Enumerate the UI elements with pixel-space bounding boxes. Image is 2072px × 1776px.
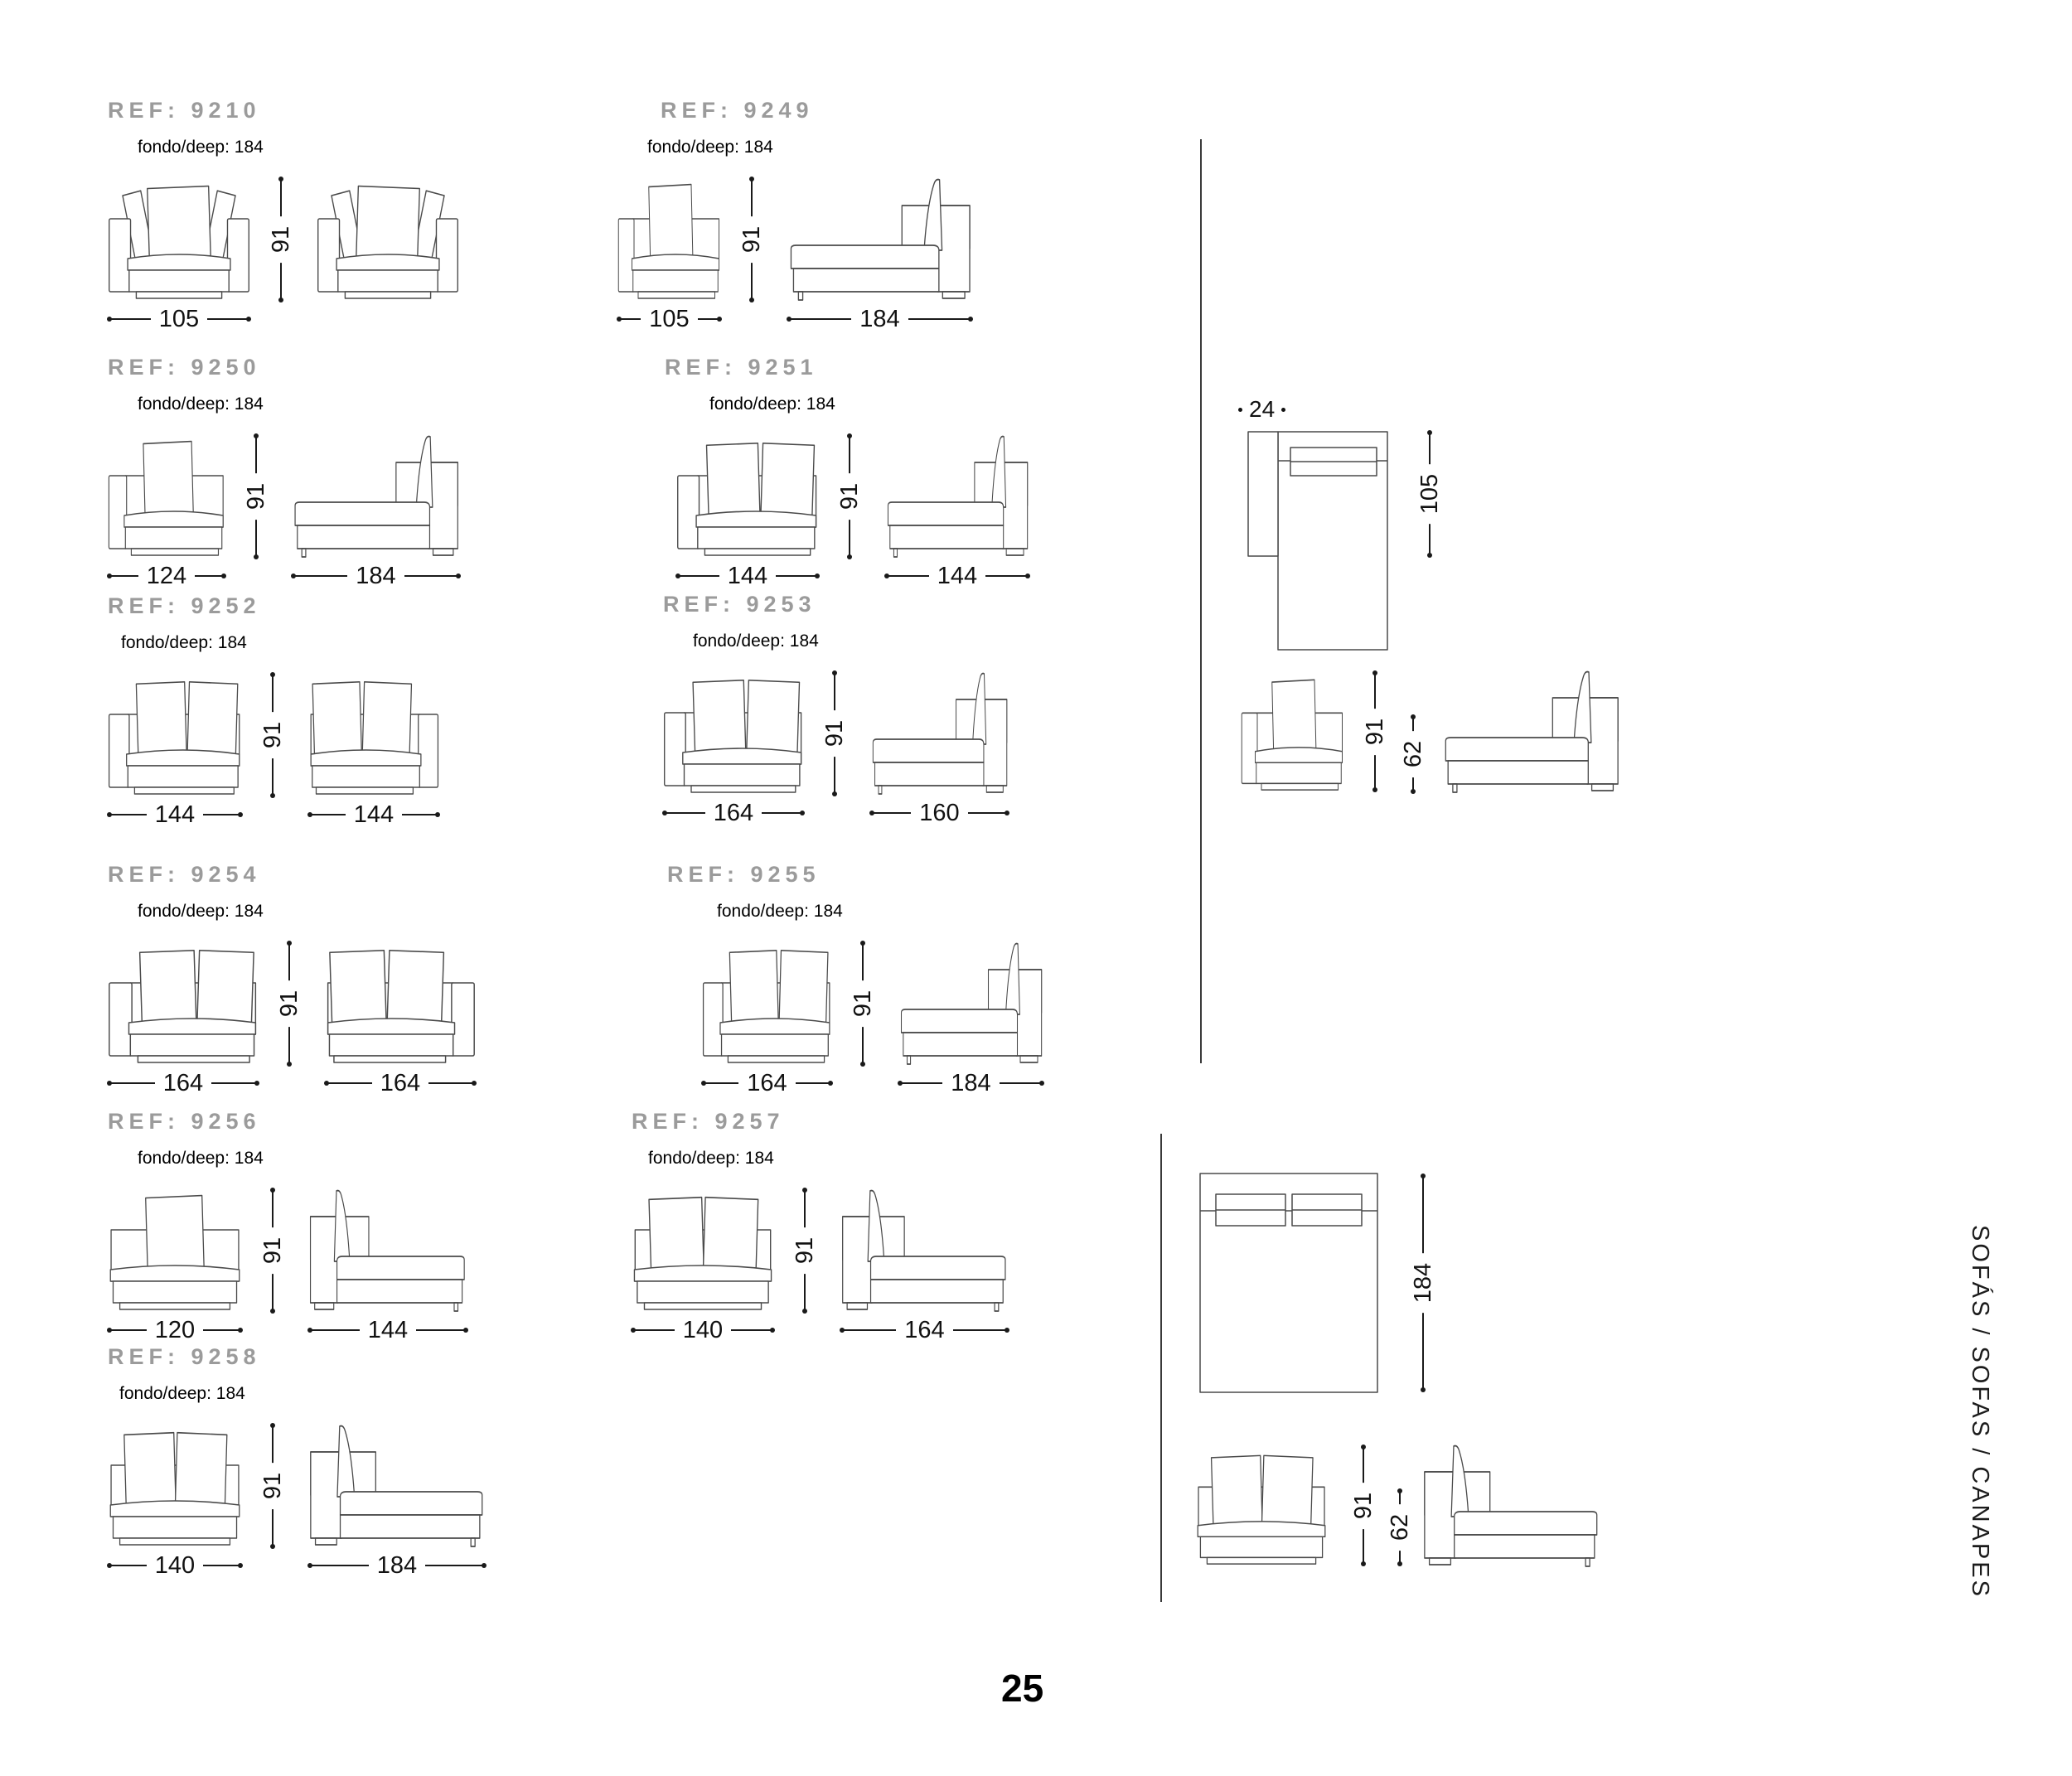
sofa-front-view-drawing <box>1195 1447 1328 1567</box>
height-dimension: 91 <box>275 941 303 1066</box>
sofa-plan-view-drawing <box>1199 1173 1378 1393</box>
width-dimension: 105 <box>108 307 250 331</box>
sofa-front-view-drawing <box>676 434 819 559</box>
sofa-front-view-drawing <box>108 673 242 797</box>
height-dimension: 91 <box>267 177 295 302</box>
width-dimension: 160 <box>870 801 1009 825</box>
vertical-divider <box>1160 1134 1162 1602</box>
width-dimension: 164 <box>702 1071 832 1096</box>
depth-dimension: 184 <box>1409 1174 1437 1391</box>
sofa-front-view-drawing <box>108 941 259 1066</box>
arm-width-dimension: 24 <box>1238 396 1285 423</box>
sofa-front-view-drawing <box>108 1188 242 1313</box>
depth-label: fondo/deep: 184 <box>138 1148 467 1169</box>
ref-heading: REF: 9210 <box>108 98 459 123</box>
width-dimension: 184 <box>787 307 972 331</box>
ref-heading: REF: 9250 <box>108 355 460 380</box>
width-dimension: 140 <box>632 1318 774 1343</box>
width-dimension: 164 <box>108 1071 259 1096</box>
sofa-front-view-drawing <box>317 177 459 302</box>
section-ref-9249: REF: 9249 fondo/deep: 184 105 91 184 <box>617 98 972 331</box>
chaise-side-view-drawing <box>308 1188 467 1313</box>
chaise-side-view-drawing <box>787 177 972 302</box>
width-dimension: 144 <box>308 1318 467 1343</box>
height-dimension: 91 <box>791 1188 819 1313</box>
depth-label: fondo/deep: 184 <box>693 631 1009 651</box>
chaise-side-view-drawing <box>885 434 1029 559</box>
sofa-front-view-drawing <box>632 1188 774 1313</box>
vertical-divider <box>1200 139 1202 1063</box>
section-ref-9255: REF: 9255 fondo/deep: 184 164 91 184 <box>667 862 1043 1096</box>
height-dimension: 91 <box>259 673 287 797</box>
catalog-page: REF: 9210 fondo/deep: 184 105 91 REF: 92… <box>0 0 2072 1776</box>
depth-label: fondo/deep: 184 <box>121 632 439 653</box>
chaise-side-view-drawing <box>1422 1444 1600 1568</box>
width-dimension: 144 <box>885 564 1029 588</box>
depth-label: fondo/deep: 184 <box>138 901 476 922</box>
height-dimension: 91 <box>821 671 849 796</box>
width-dimension: 164 <box>325 1071 476 1096</box>
sofa-front-view-drawing <box>108 434 225 559</box>
ref-heading: REF: 9249 <box>661 98 972 123</box>
width-dimension: 144 <box>108 802 242 827</box>
sofa-front-view-drawing <box>663 671 804 796</box>
width-dimension: 164 <box>840 1318 1009 1343</box>
sofa-front-view-drawing <box>108 177 250 302</box>
sofa-front-view-drawing <box>702 941 832 1066</box>
ref-heading: REF: 9256 <box>108 1109 467 1135</box>
section-ref-9251: REF: 9251 fondo/deep: 184 144 91 144 <box>665 355 1029 588</box>
width-dimension: 105 <box>617 307 721 331</box>
width-dimension: 140 <box>108 1553 242 1578</box>
height-dimension: 91 <box>849 941 877 1066</box>
sofa-front-view-drawing <box>1241 673 1344 793</box>
width-dimension: 164 <box>663 801 804 825</box>
chaise-side-view-drawing <box>898 941 1043 1066</box>
sofa-front-view-drawing <box>308 673 439 797</box>
chaise-side-view-drawing <box>308 1424 486 1548</box>
width-dimension: 124 <box>108 564 225 588</box>
height-dimension: 91 <box>259 1188 287 1313</box>
height-dimension: 91 <box>835 434 864 559</box>
sofa-front-view-drawing <box>325 941 476 1066</box>
category-side-label: SOFÁS / SOFAS / CANAPES <box>1966 1225 1993 1599</box>
depth-label: fondo/deep: 184 <box>709 394 1029 414</box>
ref-heading: REF: 9254 <box>108 862 476 888</box>
depth-label: fondo/deep: 184 <box>138 394 460 414</box>
chaise-side-view-drawing <box>292 434 460 559</box>
depth-label: fondo/deep: 184 <box>138 137 459 157</box>
section-ref-9250: REF: 9250 fondo/deep: 184 124 91 184 <box>108 355 460 588</box>
depth-label: fondo/deep: 184 <box>717 901 1043 922</box>
section-ref-9254: REF: 9254 fondo/deep: 184 164 91 164 <box>108 862 476 1096</box>
section-ref-9257: REF: 9257 fondo/deep: 184 140 91 164 <box>632 1109 1009 1343</box>
height-dimension: 91 <box>1349 1445 1377 1565</box>
seat-height-dimension: 62 <box>1386 1489 1414 1565</box>
width-dimension: 184 <box>308 1553 486 1578</box>
ref-heading: REF: 9257 <box>632 1109 1009 1135</box>
width-dimension: 120 <box>108 1318 242 1343</box>
arm-depth-dimension: 105 <box>1416 431 1444 557</box>
ref-heading: REF: 9258 <box>108 1344 486 1370</box>
width-dimension: 144 <box>308 802 439 827</box>
sofa-front-view-drawing <box>617 177 721 302</box>
chaise-side-view-drawing <box>840 1188 1009 1313</box>
chaise-side-view-drawing <box>870 671 1009 796</box>
depth-label: fondo/deep: 184 <box>119 1383 486 1404</box>
width-dimension: 184 <box>898 1071 1043 1096</box>
height-dimension: 91 <box>1361 671 1389 791</box>
depth-label: fondo/deep: 184 <box>648 1148 1009 1169</box>
depth-label: fondo/deep: 184 <box>647 137 972 157</box>
ref-heading: REF: 9251 <box>665 355 1029 380</box>
section-ref-9256: REF: 9256 fondo/deep: 184 120 91 144 <box>108 1109 467 1343</box>
section-ref-9210: REF: 9210 fondo/deep: 184 105 91 <box>108 98 459 331</box>
sofa-front-view-drawing <box>108 1424 242 1548</box>
chaise-side-view-drawing <box>1442 670 1620 794</box>
ref-heading: REF: 9255 <box>667 862 1043 888</box>
height-dimension: 91 <box>259 1424 287 1548</box>
width-dimension: 144 <box>676 564 819 588</box>
width-dimension: 184 <box>292 564 460 588</box>
sofa-plan-view-drawing <box>1247 431 1388 651</box>
section-ref-9252: REF: 9252 fondo/deep: 184 144 91 144 <box>108 593 439 827</box>
page-number: 25 <box>1001 1666 1043 1711</box>
ref-heading: REF: 9252 <box>108 593 439 619</box>
height-dimension: 91 <box>242 434 270 559</box>
ref-heading: REF: 9253 <box>663 592 1009 617</box>
section-ref-9258: REF: 9258 fondo/deep: 184 140 91 184 <box>108 1344 486 1578</box>
section-ref-9253: REF: 9253 fondo/deep: 184 164 91 160 <box>663 592 1009 825</box>
seat-height-dimension: 62 <box>1399 715 1427 793</box>
height-dimension: 91 <box>738 177 766 302</box>
